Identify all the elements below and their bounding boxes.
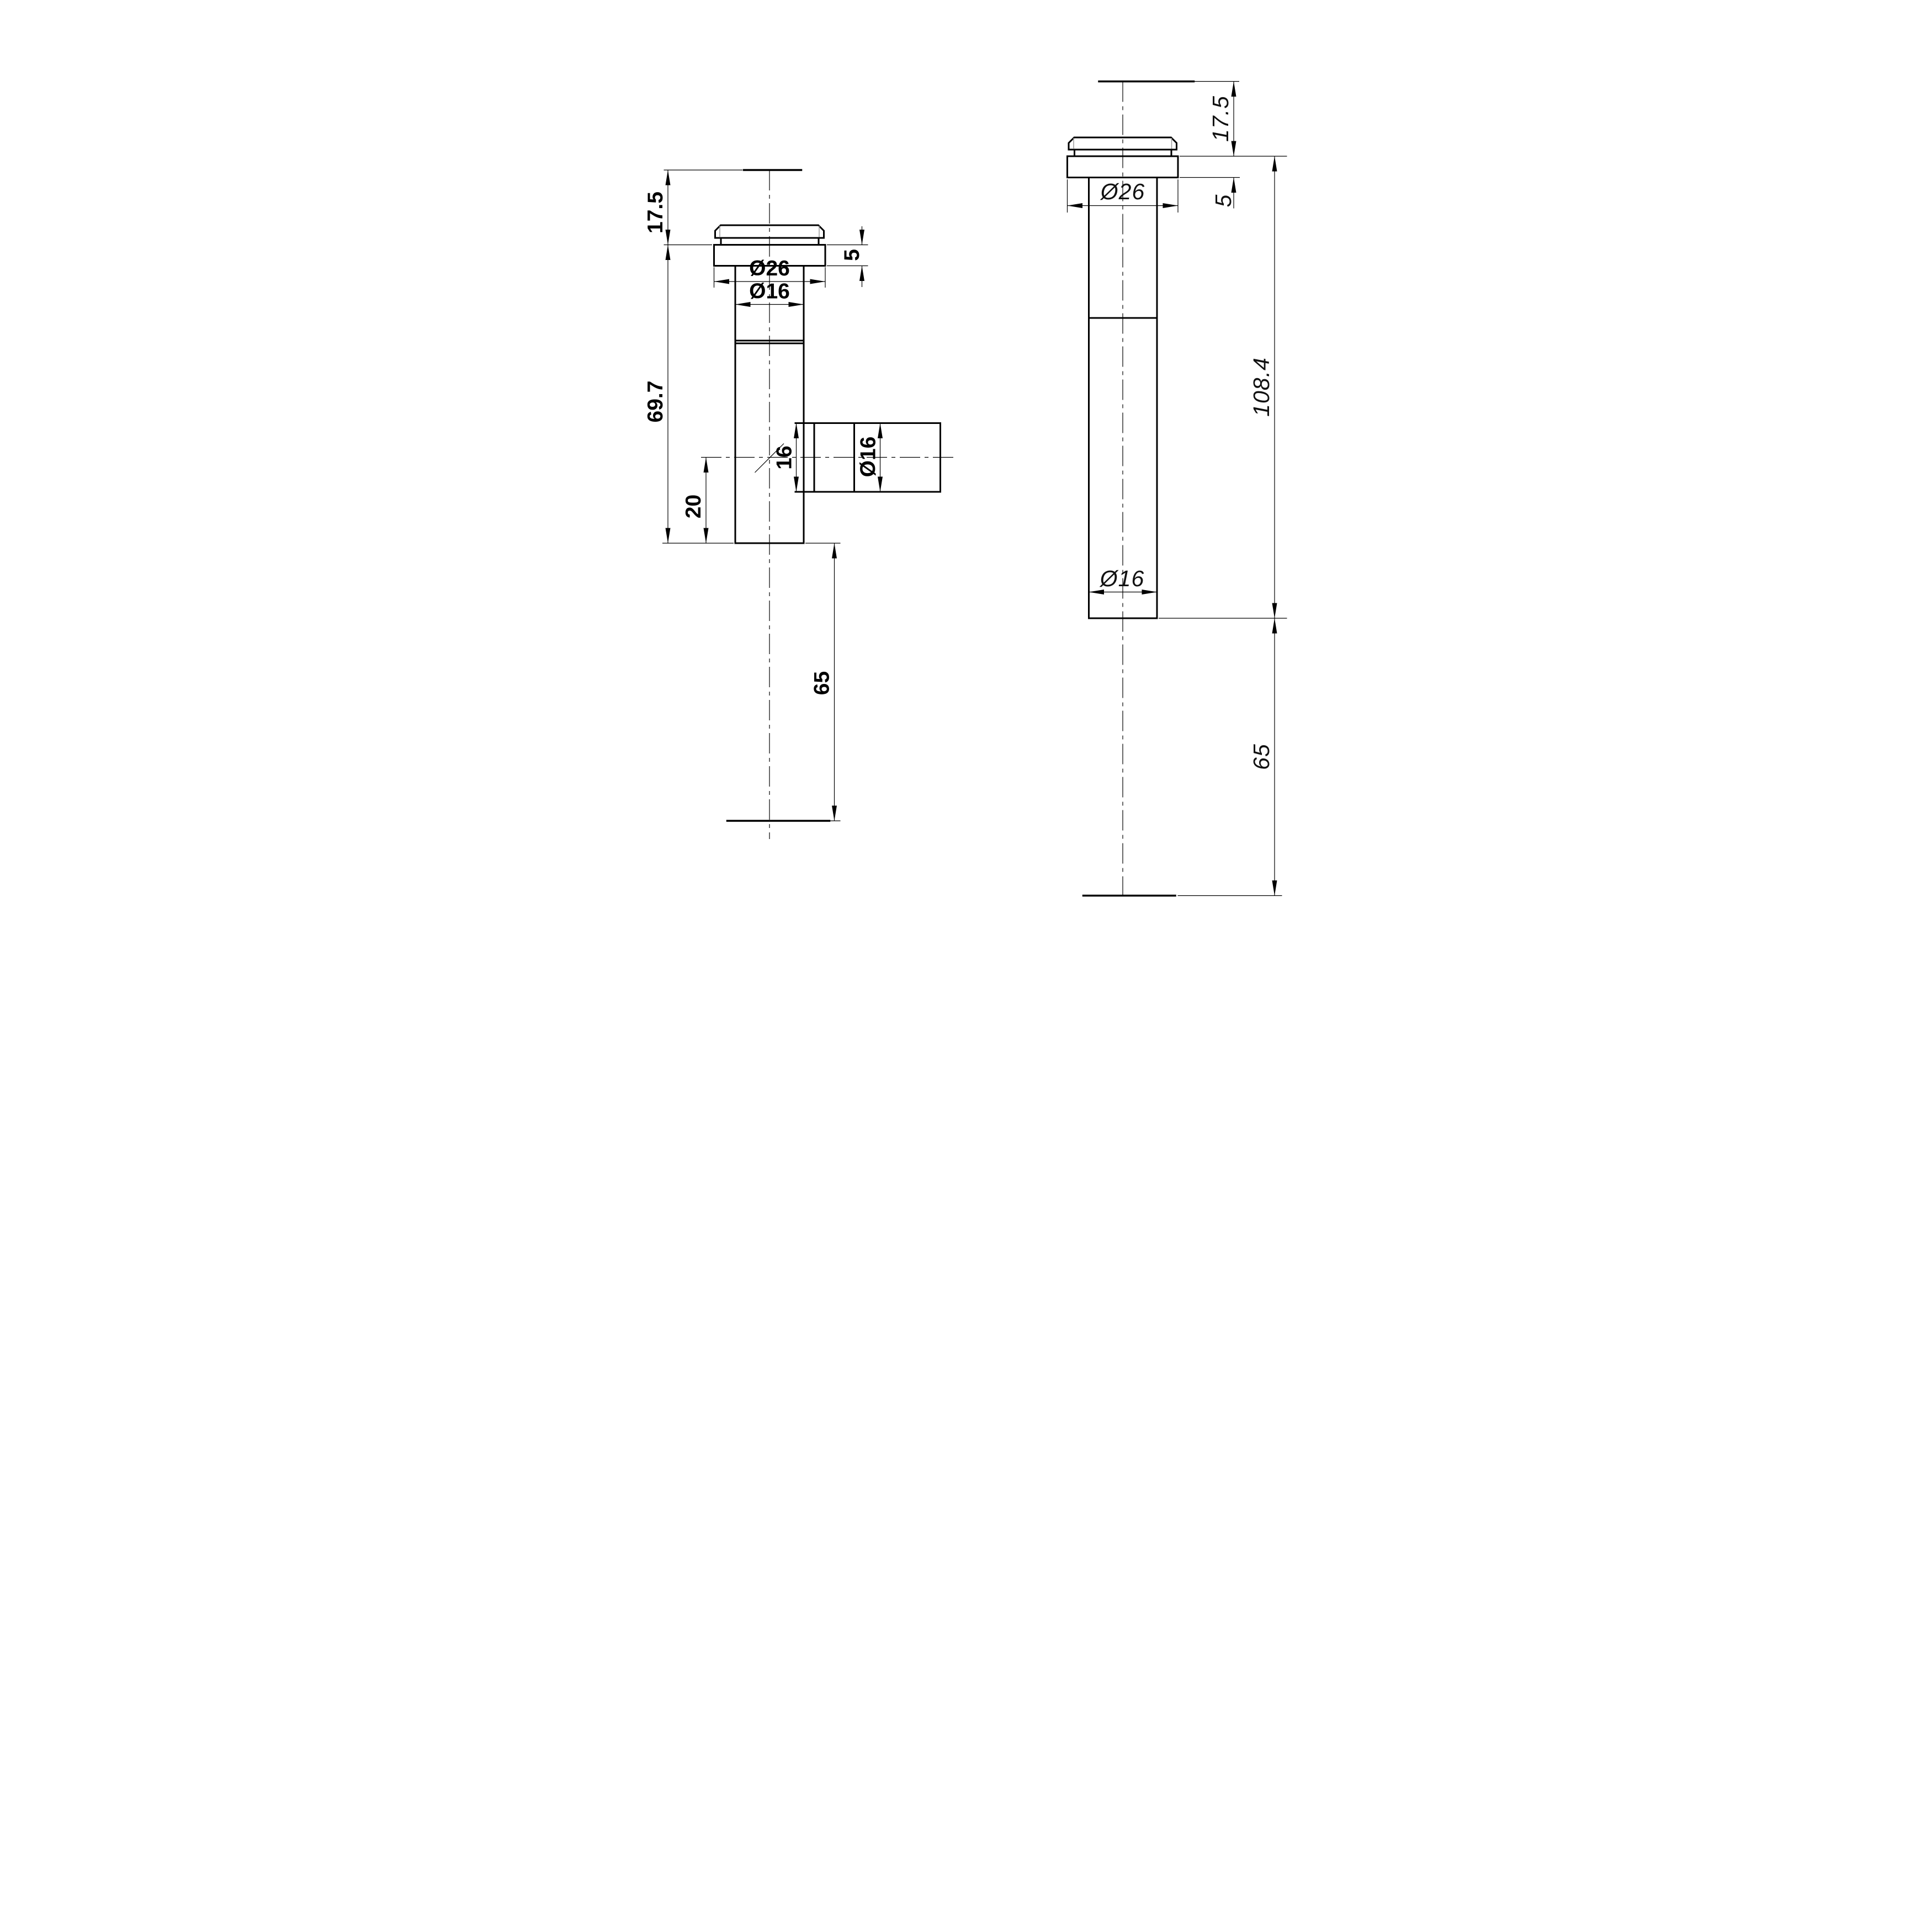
left-dim-17-5-label: 17.5: [644, 192, 667, 233]
left-dim-5: 5: [840, 226, 864, 287]
left-dim-20-label: 20: [682, 495, 705, 518]
right-dim-108-4-label: 108.4: [1249, 357, 1274, 417]
left-dim-16-branch-label: 16: [773, 445, 797, 469]
left-dim-dia26-label: Ø26: [749, 257, 790, 280]
left-dim-65: 65: [810, 543, 837, 821]
right-view: 17.5 5 Ø26 108.4 Ø16: [1068, 82, 1287, 896]
right-dim-5: 5: [1211, 178, 1236, 209]
cad-canvas: 17.5 69.7 20 65 Ø26: [483, 0, 1449, 966]
right-dim-108-4: 108.4: [1249, 156, 1277, 618]
left-dim-dia16-branch: Ø16: [857, 423, 883, 492]
right-dim-dia26: Ø26: [1068, 179, 1179, 208]
left-dim-5-label: 5: [840, 249, 864, 261]
left-dim-65-label: 65: [810, 671, 834, 695]
left-dim-dia16-shaft: Ø16: [735, 280, 804, 307]
right-dim-dia16-label: Ø16: [1099, 566, 1145, 591]
right-dim-5-label: 5: [1211, 194, 1236, 208]
right-dim-65: 65: [1249, 618, 1277, 896]
left-dim-69-7-label: 69.7: [644, 381, 667, 423]
left-dim-dia16-shaft-label: Ø16: [749, 280, 790, 304]
right-dim-17-5-label: 17.5: [1208, 95, 1233, 142]
right-dim-dia16: Ø16: [1089, 566, 1158, 595]
right-dim-17-5: 17.5: [1208, 82, 1236, 157]
left-dim-69-7: 69.7: [644, 245, 671, 544]
left-dim-16-branch: 16: [773, 423, 799, 492]
left-dim-20: 20: [682, 458, 709, 544]
left-dim-17-5: 17.5: [644, 170, 671, 245]
right-dim-65-label: 65: [1249, 744, 1274, 770]
left-dim-dia16-branch-label: Ø16: [857, 437, 880, 477]
left-view: 17.5 69.7 20 65 Ø26: [644, 170, 955, 839]
right-dim-dia26-label: Ø26: [1100, 179, 1145, 204]
drawing-sheet: 17.5 69.7 20 65 Ø26: [483, 0, 1449, 966]
